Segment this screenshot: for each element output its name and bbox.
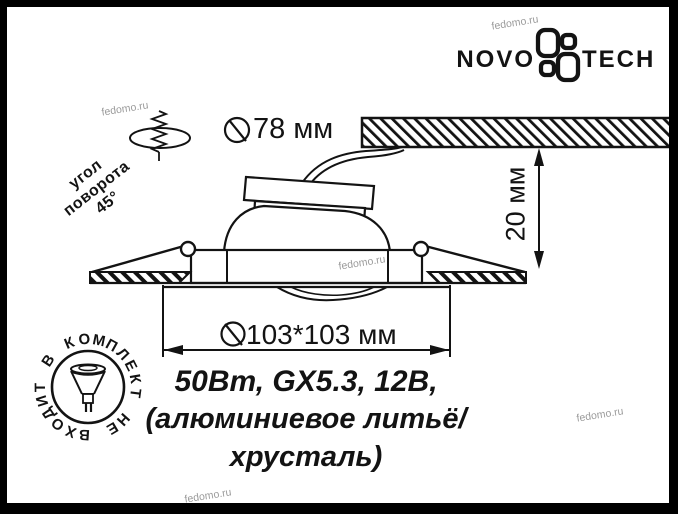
ceiling-lower-hatch-left	[90, 272, 190, 283]
stamp-ring-letter: О	[78, 331, 91, 349]
novotech-logo-icon	[538, 30, 578, 80]
stamp-ring-letter: В	[78, 426, 90, 444]
page-border-left	[0, 0, 7, 514]
diameter-icon-103	[222, 323, 245, 346]
spring-clip-left	[181, 242, 195, 256]
product-diagram-page: fedomo.ru fedomo.ru fedomo.ru fedomo.ru …	[0, 0, 678, 514]
ceiling-upper-hatch	[362, 118, 671, 147]
cutout-diameter-value: 78 мм	[253, 113, 333, 146]
glass-dome	[277, 287, 387, 300]
technical-drawing-svg	[0, 0, 678, 514]
brand-name-right: TECH	[582, 46, 655, 74]
page-border-top	[0, 0, 678, 7]
spec-line-material-2: хрусталь)	[56, 441, 556, 474]
depth-value: 20 мм	[501, 167, 532, 242]
mounting-ring	[191, 250, 422, 283]
diameter-icon-78	[225, 118, 249, 142]
page-border-bottom	[0, 503, 678, 514]
plate-size-value: 103*103 мм	[246, 319, 397, 351]
depth-dimension-arrow	[534, 148, 544, 269]
ceiling-lower-hatch-right	[428, 272, 526, 283]
brand-name-left: NOVO	[450, 46, 535, 74]
spring-clip-right	[414, 242, 428, 256]
cutout-hole-symbol	[130, 111, 190, 161]
stamp-ring-letter: Т	[32, 383, 49, 392]
page-border-right	[669, 0, 678, 514]
